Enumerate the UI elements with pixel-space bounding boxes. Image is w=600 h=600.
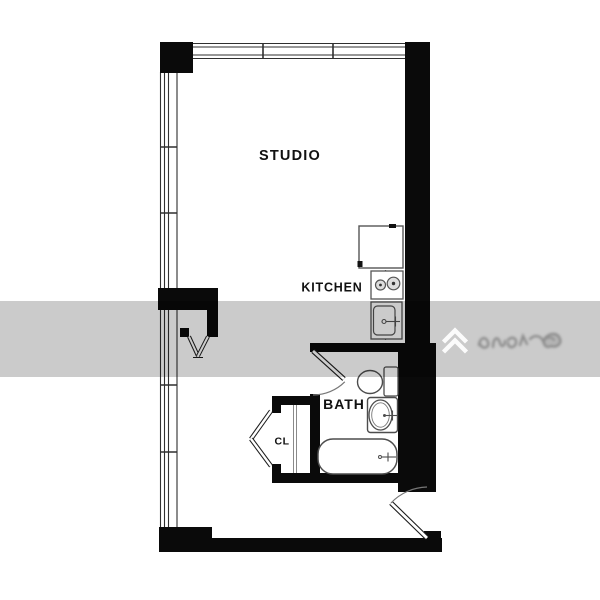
- studio-label: STUDIO: [259, 148, 321, 164]
- stove-burners-icon: [371, 271, 403, 299]
- wall-closet-top-jamb: [272, 405, 281, 413]
- wall-closet-top: [272, 396, 313, 405]
- closet-divider: [294, 405, 297, 473]
- entry-door-swing-icon: [391, 487, 427, 538]
- wall-right: [405, 42, 430, 344]
- bath-label: BATH: [323, 396, 365, 412]
- kitchen-label: KITCHEN: [301, 281, 362, 295]
- wall-bottom-left-block: [159, 527, 212, 552]
- closet-bifold-door-icon: [251, 411, 271, 466]
- closet-label: CL: [275, 436, 290, 448]
- wall-closet-bottom-jamb: [272, 464, 281, 473]
- wall-bottom: [200, 538, 442, 552]
- floor-plan: STUDIO KITCHEN BATH CL: [0, 0, 600, 600]
- wall-top-left-block: [160, 42, 193, 73]
- floor-plan-page: STUDIO KITCHEN BATH CL: [0, 0, 600, 600]
- bathtub-icon: [318, 439, 397, 474]
- wall-bath-left: [310, 394, 320, 482]
- bathroom-sink-icon: [368, 398, 398, 433]
- window-band-top: [192, 44, 405, 59]
- refrigerator-icon: [358, 224, 404, 268]
